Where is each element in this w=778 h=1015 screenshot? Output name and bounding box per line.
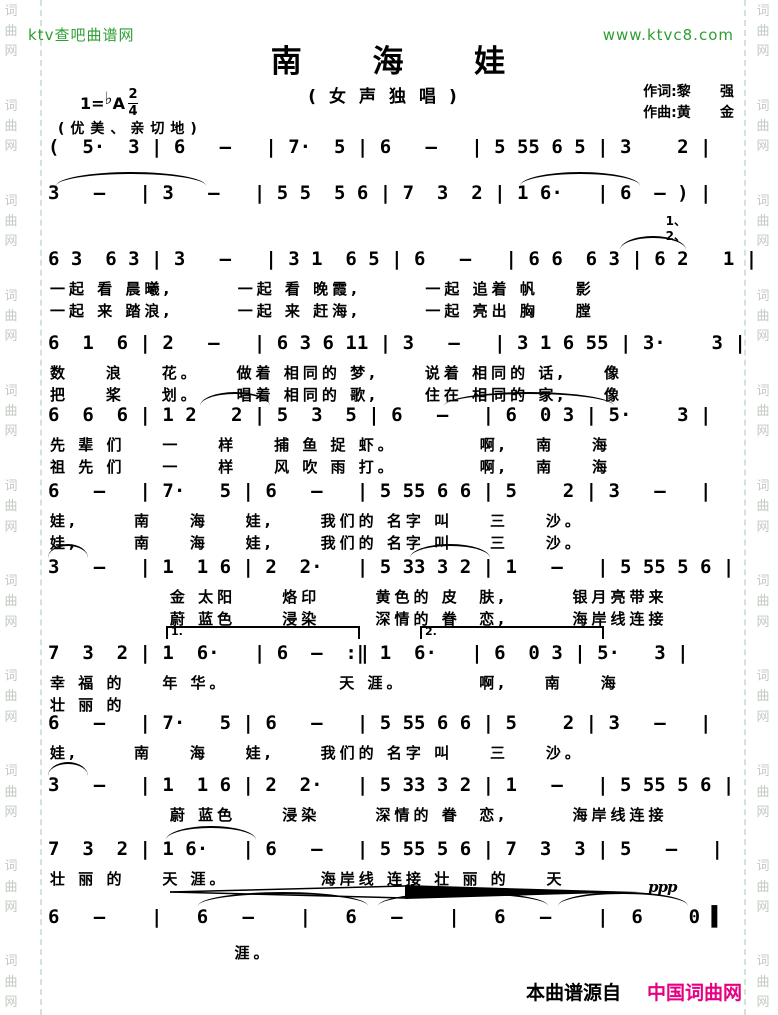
watermark-text: 词曲网 (756, 382, 770, 442)
volta-bracket-1: 1. (166, 626, 360, 639)
lyrics-line: 娃, 南 海 娃, 我们的 名字 叫 三 沙。 (50, 742, 584, 763)
volta-bracket-2: 2. (420, 626, 604, 639)
music-system-5: 3 — | 1 1 6 | 2 2· | 5 33 3 2 | 1 — | 5 … (48, 556, 744, 578)
music-system-9: 7 3 2 | 1 6· | 6 — | 5 55 5 6 | 7 3 3 | … (48, 838, 744, 860)
notation-line: 6 — | 7· 5 | 6 — | 5 55 6 6 | 5 2 | 3 — … (48, 712, 744, 734)
watermark-text: 词曲网 (756, 762, 770, 822)
music-system-8: 3 — | 1 1 6 | 2 2· | 5 33 3 2 | 1 — | 5 … (48, 774, 744, 796)
footer: 本曲谱源自中国词曲网 (513, 956, 742, 1005)
notation-line: 6 — | 6 — | 6 — | 6 — | 6 0 ▌ (48, 906, 744, 928)
music-system-6: 1. 2. 7 3 2 | 1 6· | 6 — :‖ 1 6· | 6 0 3… (48, 642, 744, 664)
left-dashed-border (40, 0, 42, 1015)
time-signature: 2 4 (128, 88, 138, 118)
footer-source-label: 本曲谱源自 (526, 982, 621, 1004)
watermark-text: 词曲网 (4, 382, 18, 442)
volta-1-label: 1. (171, 625, 183, 638)
notation-line: 6 1 6 | 2 — | 6 3 6 11 | 3 — | 3 1 6 55 … (48, 332, 744, 354)
notation-line: 3 — | 1 1 6 | 2 2· | 5 33 3 2 | 1 — | 5 … (48, 556, 744, 578)
lyrics-verse-2: 祖 先 们 一 样 风 吹 雨 打。 啊, 南 海 (50, 456, 611, 477)
verse-mark-1: 1、 (666, 214, 686, 229)
music-system-10: 6 — | 6 — | 6 — | 6 — | 6 0 ▌ 涯。 (48, 906, 744, 928)
lyrics-verse-1: 幸 福 的 年 华。 天 涯。 啊, 南 海 (50, 672, 620, 693)
notation-line: 7 3 2 | 1 6· | 6 — | 5 55 5 6 | 7 3 3 | … (48, 838, 744, 860)
song-title: 南 海 娃 (0, 36, 778, 81)
volta-2-label: 2. (425, 625, 437, 638)
meter-numerator: 2 (128, 88, 137, 102)
tie-arc (56, 172, 206, 186)
lyrics-verse-1: 金 太阳 烙印 黄色的 皮 肤, 银月亮带来 (50, 586, 667, 607)
watermark-text: 词曲网 (756, 572, 770, 632)
key-signature: 1=♭A 2 4 (80, 88, 138, 118)
notation-line: 3 — | 1 1 6 | 2 2· | 5 33 3 2 | 1 — | 5 … (48, 774, 744, 796)
music-system-7: 6 — | 7· 5 | 6 — | 5 55 6 6 | 5 2 | 3 — … (48, 712, 744, 734)
flat-sign: ♭ (105, 89, 113, 109)
lyricist-credit: 作词:黎 强 (643, 84, 734, 100)
lyrics-verse-1: 数 浪 花。 做着 相同的 梦, 说着 相同的 话, 像 (50, 362, 623, 383)
tempo-marking: (优美、亲切地) (58, 118, 203, 138)
music-system-3: 6 6 6 | 1 2 2 | 5 3 5 | 6 — | 6 0 3 | 5·… (48, 404, 744, 426)
watermark-text: 词曲网 (756, 952, 770, 1012)
notation-line: ( 5· 3 | 6 — | 7· 5 | 6 — | 5 55 6 5 | 3… (48, 136, 744, 158)
slur-arc (166, 826, 256, 840)
notation-line: 6 6 6 | 1 2 2 | 5 3 5 | 6 — | 6 0 3 | 5·… (48, 404, 744, 426)
credits: 作词:黎 强 作曲:黄 金 (643, 82, 734, 124)
key-prefix: 1= (80, 94, 105, 113)
watermark-text: 词曲网 (4, 477, 18, 537)
right-dashed-border (744, 0, 746, 1015)
music-system-2: 6 1 6 | 2 — | 6 3 6 11 | 3 — | 3 1 6 55 … (48, 332, 744, 354)
right-watermark-column: 词曲网 词曲网 词曲网 词曲网 词曲网 词曲网 词曲网 词曲网 词曲网 词曲网 … (756, 0, 774, 1015)
watermark-text: 词曲网 (756, 192, 770, 252)
lyrics-verse-2: 一起 来 踏浪, 一起 来 赶海, 一起 亮出 胸 膛 (50, 300, 595, 321)
watermark-text: 词曲网 (4, 762, 18, 822)
key-note: A (113, 94, 125, 113)
left-watermark-column: 词曲网 词曲网 词曲网 词曲网 词曲网 词曲网 词曲网 词曲网 词曲网 词曲网 … (4, 0, 22, 1015)
watermark-text: 词曲网 (4, 952, 18, 1012)
tie-arc (48, 762, 88, 776)
composer-credit: 作曲:黄 金 (643, 105, 734, 121)
lyrics-verse-1: 娃, 南 海 娃, 我们的 名字 叫 三 沙。 (50, 510, 584, 531)
watermark-text: 词曲网 (756, 287, 770, 347)
notation-line: 6 — | 7· 5 | 6 — | 5 55 6 6 | 5 2 | 3 — … (48, 480, 744, 502)
music-system-1: 1、2、 6 3 6 3 | 3 — | 3 1 6 5 | 6 — | 6 6… (48, 248, 744, 270)
watermark-text: 词曲网 (4, 667, 18, 727)
music-system-intro-b: 3 — | 3 — | 5 5 5 6 | 7 3 2 | 1 6· | 6 —… (48, 182, 744, 204)
lyrics-line: 涯。 (50, 942, 272, 963)
watermark-text: 词曲网 (4, 857, 18, 917)
music-system-4: 6 — | 7· 5 | 6 — | 5 55 6 6 | 5 2 | 3 — … (48, 480, 744, 502)
lyrics-verse-1: 一起 看 晨曦, 一起 看 晚霞, 一起 追着 帆 影 (50, 278, 595, 299)
watermark-text: 词曲网 (4, 192, 18, 252)
footer-brand-name: 中国词曲网 (647, 982, 742, 1004)
meter-denominator: 4 (128, 105, 137, 118)
watermark-text: 词曲网 (756, 667, 770, 727)
watermark-text: 词曲网 (756, 477, 770, 537)
watermark-text: 词曲网 (4, 287, 18, 347)
music-system-intro-a: ( 5· 3 | 6 — | 7· 5 | 6 — | 5 55 6 5 | 3… (48, 136, 744, 158)
watermark-text: 词曲网 (756, 857, 770, 917)
tie-arc (520, 172, 640, 186)
lyrics-verse-1: 先 辈 们 一 样 捕 鱼 捉 虾。 啊, 南 海 (50, 434, 611, 455)
sheet-music-page: { "header": { "site_left": "ktv查吧曲谱网", "… (0, 0, 778, 1015)
watermark-text: 词曲网 (4, 572, 18, 632)
notation-line: 6 3 6 3 | 3 — | 3 1 6 5 | 6 — | 6 6 6 3 … (48, 248, 744, 270)
notation-line: 7 3 2 | 1 6· | 6 — :‖ 1 6· | 6 0 3 | 5· … (48, 642, 744, 664)
lyrics-verse-2: 娃, 南 海 娃, 我们的 名字 叫 三 沙。 (50, 532, 584, 553)
lyrics-line: 蔚 蓝色 浸染 深情的 眷 恋, 海岸线连接 (50, 804, 667, 825)
